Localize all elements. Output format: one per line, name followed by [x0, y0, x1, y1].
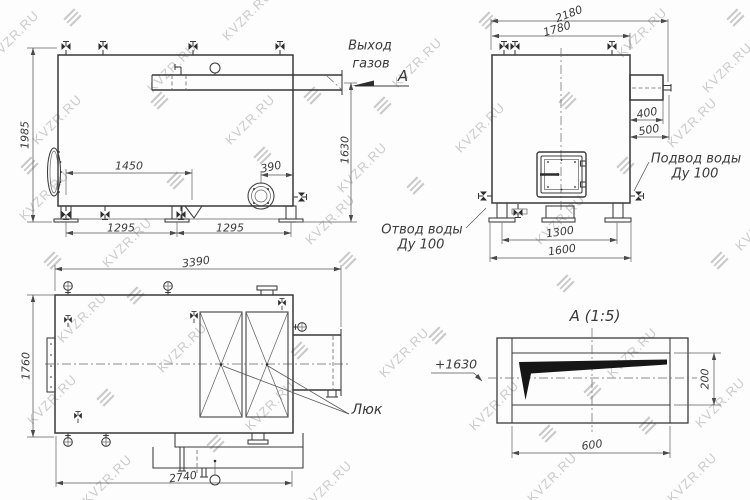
dim-pitch: 1450 — [115, 160, 143, 173]
hinge-icon — [581, 161, 587, 166]
manhole-door-plan — [47, 338, 55, 392]
valve-icon — [278, 299, 286, 310]
flange-icon — [257, 286, 277, 290]
level-wedge-mark — [519, 360, 667, 401]
valve-icon — [189, 42, 198, 56]
gauge-icon — [210, 63, 220, 73]
furnace-door — [537, 152, 586, 197]
burner-flange — [248, 183, 274, 209]
hatch-label: Люк — [352, 402, 383, 418]
valve-icon — [293, 323, 306, 332]
top-view-drawing — [27, 265, 350, 487]
valve-icon — [64, 316, 72, 327]
dim-span-left: 1295 — [107, 222, 135, 235]
valve-icon — [101, 206, 110, 220]
water-inlet-valve-icon — [630, 192, 644, 201]
valve-icon — [64, 433, 73, 446]
dim-width-overall-top: 1760 — [20, 352, 33, 380]
water-outlet-valve-icon — [479, 192, 493, 201]
valve-icon — [500, 42, 509, 56]
gas-outlet-label: газов — [352, 57, 389, 72]
hatch-1 — [200, 312, 242, 417]
level-mark: +1630 — [435, 357, 477, 372]
hatch-2 — [246, 312, 288, 417]
section-letter: А — [398, 67, 408, 85]
valve-icon — [62, 206, 71, 220]
detail-view-drawing — [431, 328, 721, 458]
valve-icon — [511, 42, 520, 56]
boiler-drawing-sheet: KVZR.RUKVZR.RUKVZR.RUKVZR.RUKVZR.RUKVZR.… — [0, 0, 750, 500]
valve-icon — [177, 206, 186, 220]
hinge-icon — [581, 182, 587, 187]
gauge-icon — [210, 475, 220, 485]
drain-valve-icon — [514, 204, 523, 218]
valve-icon — [190, 312, 198, 323]
valve-icon — [293, 193, 307, 202]
water-inlet-label: Подвод воды — [651, 152, 741, 167]
water-outlet-size: Ду 100 — [398, 238, 445, 253]
water-outlet-label: Отвод воды — [381, 223, 462, 238]
valve-icon — [164, 282, 173, 295]
valve-icon — [276, 42, 285, 56]
drawing-canvas — [0, 0, 750, 500]
valve-icon — [74, 412, 82, 423]
valve-icon — [99, 42, 108, 56]
valve-icon — [102, 433, 111, 446]
detail-title: А (1:5) — [570, 307, 621, 325]
water-inlet-size: Ду 100 — [672, 167, 719, 182]
dim-outlet-height: 1630 — [339, 136, 352, 164]
flange-icon — [248, 440, 268, 444]
dim-height: 1985 — [19, 121, 32, 149]
valve-icon — [608, 42, 617, 56]
valve-icon — [64, 282, 73, 295]
gas-outlet-label: Выход — [348, 39, 392, 54]
manhole-door — [48, 148, 62, 196]
valve-icon — [62, 42, 71, 56]
dim-detail-height: 200 — [699, 369, 712, 390]
dim-span-right: 1295 — [216, 222, 244, 235]
